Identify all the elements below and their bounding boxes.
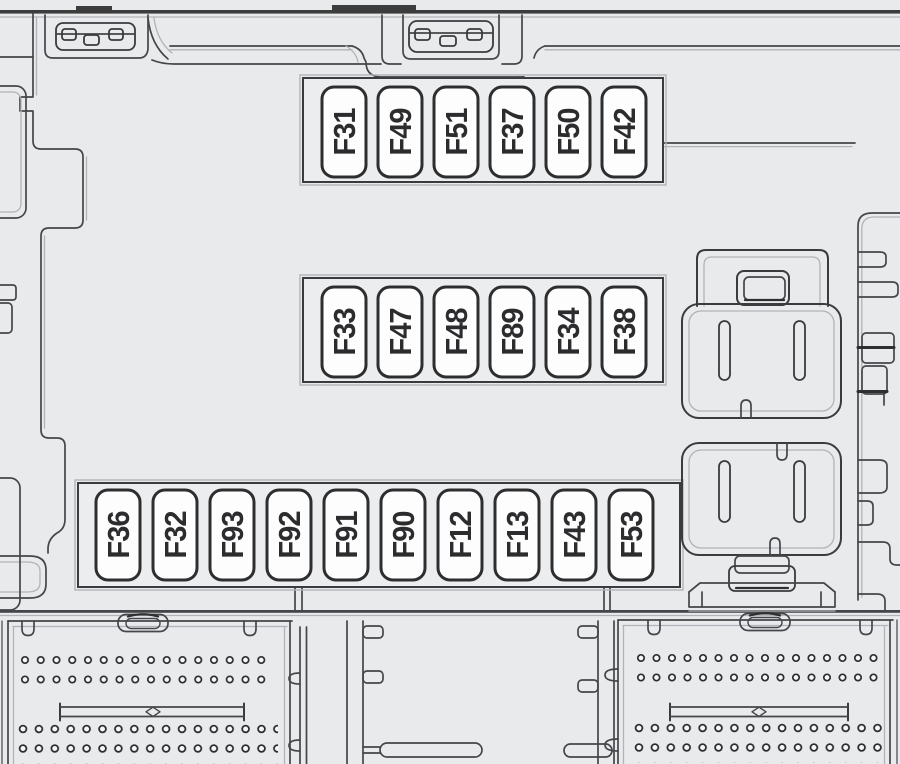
fuse-label: F92 <box>273 511 307 558</box>
fuse-label: F47 <box>384 308 418 355</box>
fuse-F43: F43 <box>552 490 596 580</box>
fuse-F47: F47 <box>378 287 422 377</box>
fuse-label: F89 <box>496 308 530 355</box>
fuse-label: F12 <box>444 511 478 558</box>
fuse-label: F33 <box>328 308 362 355</box>
fuse-label: F48 <box>440 308 474 355</box>
fuse-F89: F89 <box>490 287 534 377</box>
fuse-label: F91 <box>330 511 364 558</box>
fuse-box-svg: F31F49F51F37F50F42 F33F47F48F89F34F38 F3… <box>0 0 900 764</box>
fuse-row-top: F31F49F51F37F50F42 <box>300 75 666 185</box>
fuse-F53: F53 <box>609 490 653 580</box>
top-rib-center <box>332 5 416 12</box>
fuse-F48: F48 <box>434 287 478 377</box>
fuse-box-diagram: F31F49F51F37F50F42 F33F47F48F89F34F38 F3… <box>0 0 900 764</box>
fuse-F38: F38 <box>602 287 646 377</box>
fuse-F51: F51 <box>434 87 478 177</box>
fuse-label: F90 <box>387 511 421 558</box>
terminal-grid <box>20 653 272 693</box>
fuse-label: F43 <box>558 511 592 558</box>
fuse-F37: F37 <box>490 87 534 177</box>
fuse-label: F49 <box>384 108 418 155</box>
fuse-label: F53 <box>615 511 649 558</box>
fuse-F93: F93 <box>210 490 254 580</box>
fuse-label: F93 <box>216 511 250 558</box>
fuse-label: F51 <box>440 108 474 155</box>
terminal-grid <box>18 722 278 764</box>
fuse-label: F38 <box>608 308 642 355</box>
fuse-row-middle: F33F47F48F89F34F38 <box>300 275 666 385</box>
fuse-F49: F49 <box>378 87 422 177</box>
fuse-label: F42 <box>608 108 642 155</box>
housing-top-edge <box>0 10 900 14</box>
fuse-row-bottom: F36F32F93F92F91F90F12F13F43F53 <box>75 480 683 590</box>
fuse-F13: F13 <box>495 490 539 580</box>
fuse-F36: F36 <box>96 490 140 580</box>
fuse-F50: F50 <box>546 87 590 177</box>
fuse-F92: F92 <box>267 490 311 580</box>
fuse-F31: F31 <box>322 87 366 177</box>
terminal-grid <box>636 651 884 691</box>
fuse-label: F50 <box>552 108 586 155</box>
fuse-F42: F42 <box>602 87 646 177</box>
fuse-label: F13 <box>501 511 535 558</box>
fuse-label: F31 <box>328 108 362 155</box>
fuse-F90: F90 <box>381 490 425 580</box>
terminal-grid <box>634 721 888 763</box>
fuse-F33: F33 <box>322 287 366 377</box>
fuse-label: F32 <box>159 511 193 558</box>
fuse-label: F36 <box>102 511 136 558</box>
fuse-label: F37 <box>496 108 530 155</box>
top-rib-left <box>76 6 112 12</box>
fuse-F12: F12 <box>438 490 482 580</box>
fuse-label: F34 <box>552 307 586 355</box>
fuse-F32: F32 <box>153 490 197 580</box>
fuse-F91: F91 <box>324 490 368 580</box>
fuse-F34: F34 <box>546 287 590 377</box>
